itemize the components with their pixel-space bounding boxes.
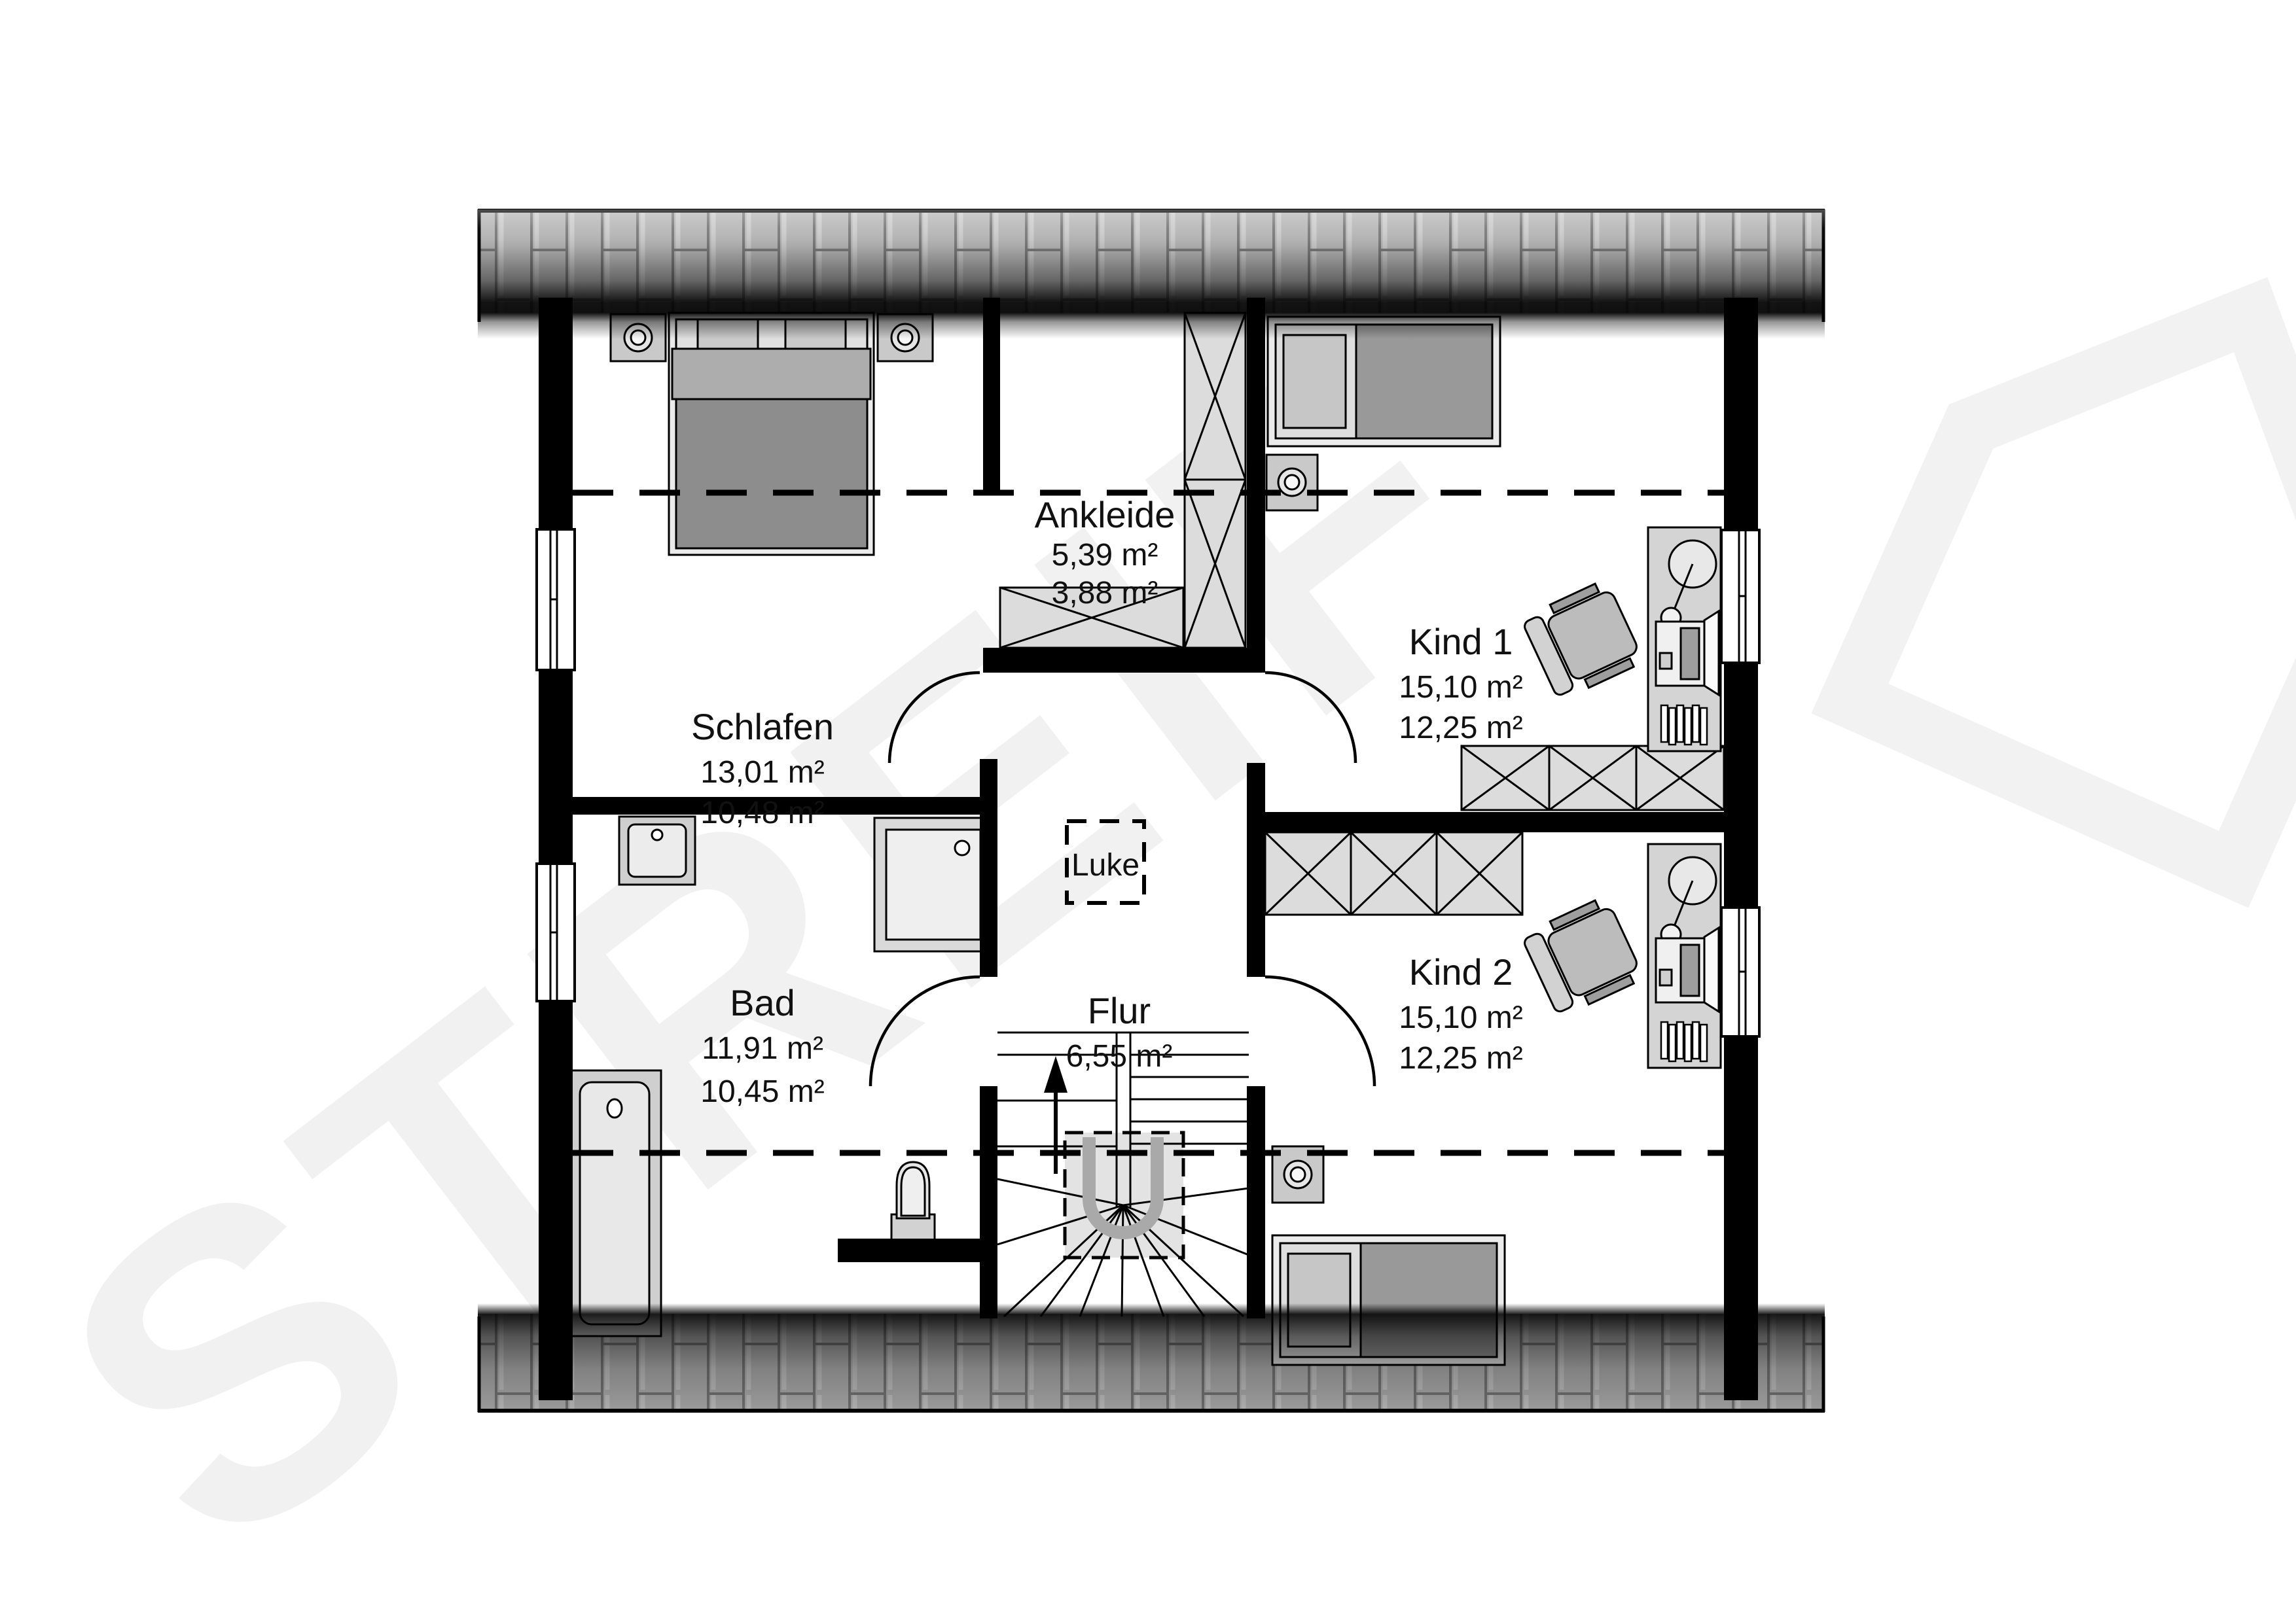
office-chair-kind2 bbox=[1520, 896, 1645, 1019]
desk-kind1 bbox=[1648, 527, 1721, 751]
room-label-ankleide: Ankleide 5,39 m² 3,88 m² bbox=[1035, 494, 1175, 610]
svg-text:3,88 m²: 3,88 m² bbox=[1052, 576, 1158, 610]
exterior-wall-right bbox=[1724, 663, 1758, 908]
svg-text:12,25 m²: 12,25 m² bbox=[1399, 711, 1522, 745]
svg-text:Kind 1: Kind 1 bbox=[1409, 621, 1513, 662]
svg-text:5,39 m²: 5,39 m² bbox=[1052, 538, 1158, 573]
wall-toilet-stub bbox=[838, 1239, 997, 1262]
streif-house-logo bbox=[1811, 180, 2296, 908]
svg-text:Kind 2: Kind 2 bbox=[1409, 951, 1513, 993]
wardrobe-ankleide-tall bbox=[1185, 313, 1246, 648]
luke-label: Luke bbox=[1071, 848, 1139, 883]
floor-plan-page: STREIF bbox=[0, 0, 2296, 1624]
exterior-wall-left bbox=[539, 670, 573, 864]
roof-shadow-bottom bbox=[478, 1303, 1825, 1412]
svg-text:10,48 m²: 10,48 m² bbox=[700, 796, 824, 830]
wardrobe-kind2 bbox=[1265, 832, 1522, 915]
bathtub bbox=[568, 1070, 661, 1336]
wall-ankleide-kind1 bbox=[1247, 298, 1265, 673]
door-arc-kind2 bbox=[1265, 977, 1374, 1086]
desk-kind2 bbox=[1648, 844, 1721, 1068]
svg-text:10,45 m²: 10,45 m² bbox=[700, 1074, 824, 1109]
wall-kind1-kind2 bbox=[1265, 812, 1724, 832]
svg-text:13,01 m²: 13,01 m² bbox=[700, 755, 824, 790]
svg-text:Schlafen: Schlafen bbox=[691, 706, 834, 747]
svg-text:6,55 m²: 6,55 m² bbox=[1066, 1039, 1173, 1074]
svg-text:Bad: Bad bbox=[730, 982, 795, 1023]
wall-bad-flur bbox=[980, 759, 997, 977]
svg-text:Ankleide: Ankleide bbox=[1035, 494, 1175, 535]
svg-text:15,10 m²: 15,10 m² bbox=[1399, 1000, 1522, 1035]
svg-text:Flur: Flur bbox=[1088, 990, 1151, 1031]
floor-plan-drawing: STREIF bbox=[0, 0, 2296, 1624]
shower bbox=[874, 818, 992, 951]
stairs bbox=[997, 1033, 1249, 1316]
room-label-kind1: Kind 1 15,10 m² 12,25 m² bbox=[1399, 621, 1522, 745]
svg-text:15,10 m²: 15,10 m² bbox=[1399, 670, 1522, 705]
washbasin bbox=[619, 817, 695, 885]
keyboard bbox=[1661, 705, 1707, 745]
room-label-kind2: Kind 2 15,10 m² 12,25 m² bbox=[1399, 951, 1522, 1076]
window-kind1 bbox=[1721, 530, 1759, 663]
window-bad bbox=[537, 864, 575, 1001]
wall-bad-flur bbox=[980, 1086, 997, 1318]
toilet bbox=[891, 1162, 935, 1246]
window-kind2 bbox=[1721, 908, 1759, 1036]
wall-flur-top bbox=[983, 648, 1265, 673]
roof-shadow-top bbox=[478, 209, 1825, 339]
window-schlafen bbox=[537, 529, 575, 670]
svg-text:11,91 m²: 11,91 m² bbox=[702, 1031, 823, 1066]
wardrobe-kind1 bbox=[1462, 746, 1724, 810]
wall-flur-kind2 bbox=[1247, 1086, 1265, 1318]
room-label-schlafen: Schlafen 13,01 m² 10,48 m² bbox=[691, 706, 834, 830]
nightstand bbox=[1266, 455, 1318, 510]
double-bed bbox=[669, 313, 874, 555]
svg-text:12,25 m²: 12,25 m² bbox=[1399, 1041, 1522, 1076]
wall-flur-kind1 bbox=[1247, 763, 1265, 977]
keyboard bbox=[1661, 1022, 1707, 1061]
